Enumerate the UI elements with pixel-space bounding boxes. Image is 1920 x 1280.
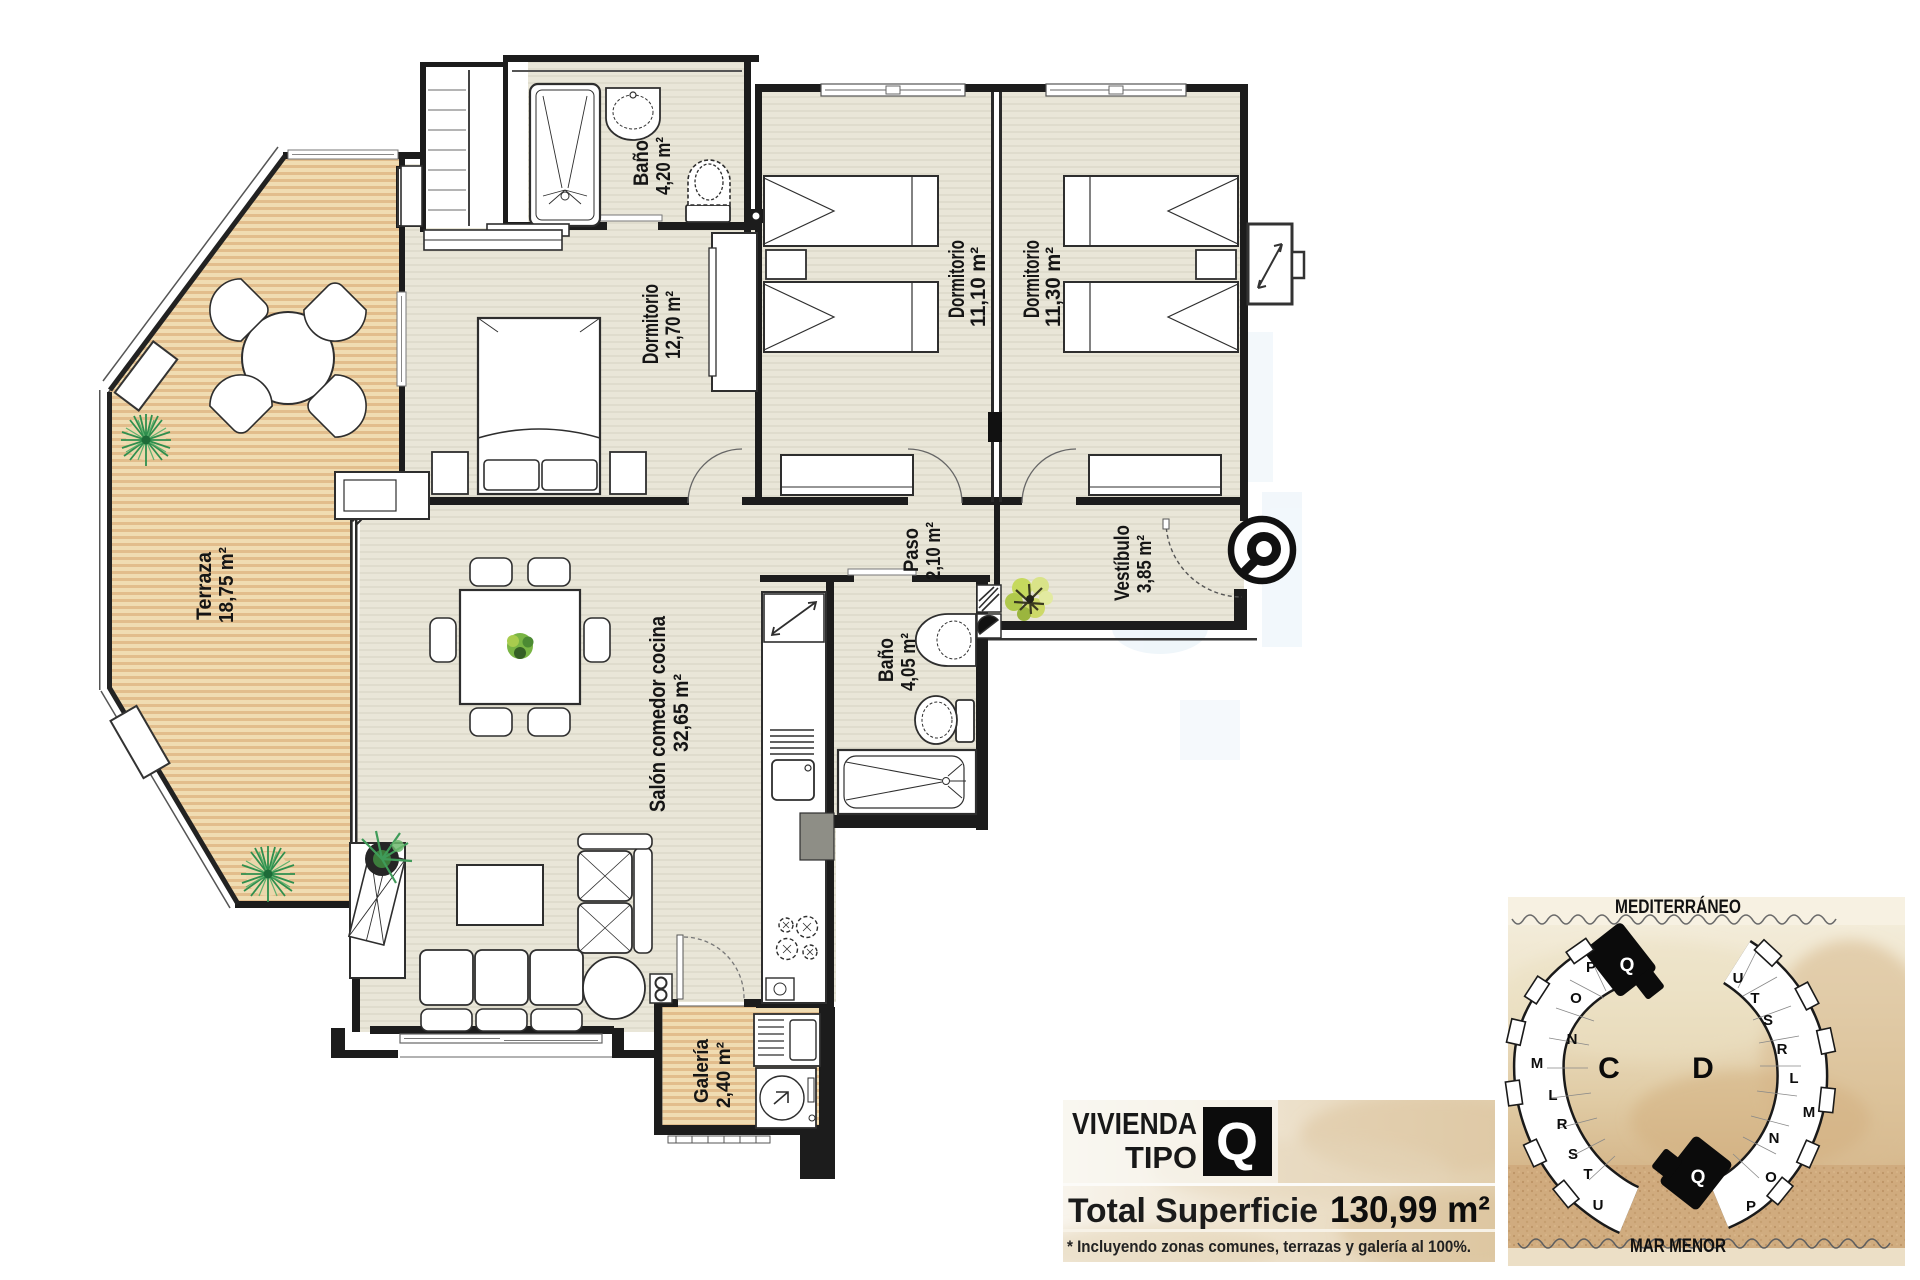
svg-text:Total Superficie: Total Superficie	[1068, 1192, 1318, 1230]
svg-text:S: S	[1568, 1146, 1578, 1163]
svg-text:4,05 m²: 4,05 m²	[898, 633, 920, 691]
svg-text:Terraza: Terraza	[193, 552, 216, 620]
svg-text:Vestíbulo: Vestíbulo	[1111, 525, 1134, 601]
svg-text:Dormitorio: Dormitorio	[638, 284, 663, 364]
svg-text:T: T	[1750, 990, 1759, 1007]
svg-text:R: R	[1777, 1041, 1788, 1058]
svg-text:C: C	[1598, 1052, 1620, 1085]
svg-text:P: P	[1586, 959, 1596, 976]
svg-text:3,85 m²: 3,85 m²	[1134, 535, 1156, 593]
svg-text:2,10 m²: 2,10 m²	[923, 522, 945, 580]
svg-text:Dormitorio: Dormitorio	[944, 240, 969, 318]
svg-text:11,10 m²: 11,10 m²	[967, 247, 990, 327]
svg-text:T: T	[1583, 1166, 1592, 1183]
svg-text:M: M	[1531, 1055, 1544, 1072]
svg-text:M: M	[1803, 1104, 1816, 1121]
svg-text:18,75 m²: 18,75 m²	[216, 547, 238, 623]
svg-text:4,20 m²: 4,20 m²	[653, 137, 675, 195]
svg-text:130,99 m²: 130,99 m²	[1330, 1189, 1490, 1230]
svg-text:32,65 m²: 32,65 m²	[670, 674, 693, 752]
svg-text:Paso: Paso	[900, 528, 923, 572]
svg-text:Galería: Galería	[691, 1038, 713, 1103]
svg-text:2,40 m²: 2,40 m²	[714, 1042, 735, 1108]
svg-text:N: N	[1567, 1031, 1578, 1048]
svg-text:Q: Q	[1216, 1112, 1258, 1172]
svg-text:U: U	[1593, 1197, 1604, 1214]
svg-text:Q: Q	[1620, 955, 1635, 976]
svg-text:Baño: Baño	[875, 638, 898, 682]
svg-text:U: U	[1733, 970, 1744, 987]
svg-text:D: D	[1692, 1052, 1714, 1085]
svg-text:Dormitorio: Dormitorio	[1019, 240, 1044, 318]
svg-text:N: N	[1769, 1130, 1780, 1147]
svg-text:VIVIENDA: VIVIENDA	[1072, 1106, 1197, 1141]
svg-text:R: R	[1557, 1116, 1568, 1133]
svg-text:L: L	[1548, 1087, 1557, 1104]
svg-text:O: O	[1765, 1169, 1777, 1186]
svg-text:S: S	[1763, 1012, 1773, 1029]
svg-text:P: P	[1746, 1198, 1756, 1215]
svg-text:L: L	[1789, 1070, 1798, 1087]
svg-text:Salón comedor cocina: Salón comedor cocina	[645, 615, 670, 812]
svg-text:TIPO: TIPO	[1125, 1140, 1197, 1175]
svg-text:Q: Q	[1691, 1167, 1706, 1188]
svg-text:11,30 m²: 11,30 m²	[1042, 247, 1065, 327]
svg-text:* Incluyendo zonas comunes, te: * Incluyendo zonas comunes, terrazas y g…	[1067, 1237, 1471, 1256]
svg-text:O: O	[1570, 990, 1582, 1007]
svg-text:MAR MENOR: MAR MENOR	[1630, 1236, 1726, 1257]
svg-text:12,70 m²: 12,70 m²	[662, 291, 685, 359]
svg-text:Baño: Baño	[630, 140, 653, 186]
